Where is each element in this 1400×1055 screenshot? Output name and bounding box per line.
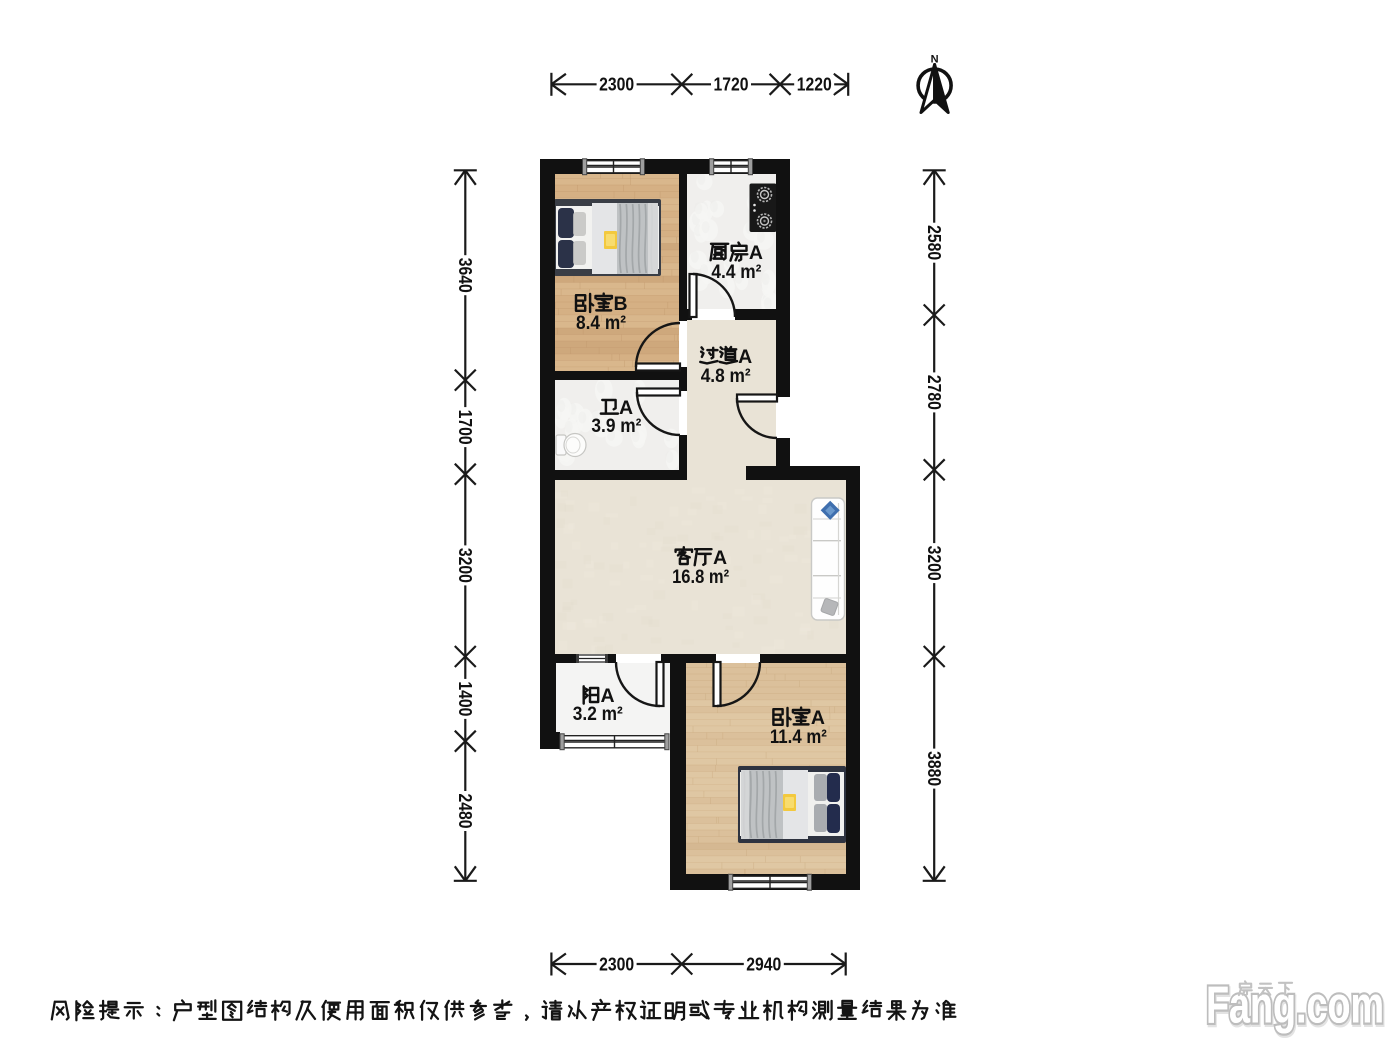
svg-text:1700: 1700	[455, 410, 476, 445]
svg-text:3.9 m²: 3.9 m²	[591, 415, 641, 437]
svg-text:4.4 m²: 4.4 m²	[711, 261, 761, 283]
svg-text:2300: 2300	[599, 74, 634, 95]
svg-text:2580: 2580	[924, 225, 945, 260]
svg-text:8.4 m²: 8.4 m²	[576, 312, 626, 334]
svg-text:2300: 2300	[599, 953, 634, 974]
svg-text:Fang.com: Fang.com	[1206, 977, 1384, 1035]
svg-text:1220: 1220	[797, 74, 832, 95]
svg-text:2780: 2780	[924, 375, 945, 410]
svg-text:3880: 3880	[924, 751, 945, 786]
svg-text:4.8 m²: 4.8 m²	[701, 365, 751, 387]
svg-text:3.2 m²: 3.2 m²	[573, 703, 623, 725]
svg-text:16.8 m²: 16.8 m²	[672, 566, 729, 588]
svg-text:1720: 1720	[714, 74, 749, 95]
svg-text:3200: 3200	[455, 548, 476, 583]
svg-text:3640: 3640	[455, 258, 476, 293]
svg-text:1400: 1400	[455, 681, 476, 716]
svg-text:2940: 2940	[746, 953, 781, 974]
svg-text:11.4 m²: 11.4 m²	[770, 726, 827, 748]
svg-text:2480: 2480	[455, 794, 476, 829]
svg-text:3200: 3200	[924, 546, 945, 581]
